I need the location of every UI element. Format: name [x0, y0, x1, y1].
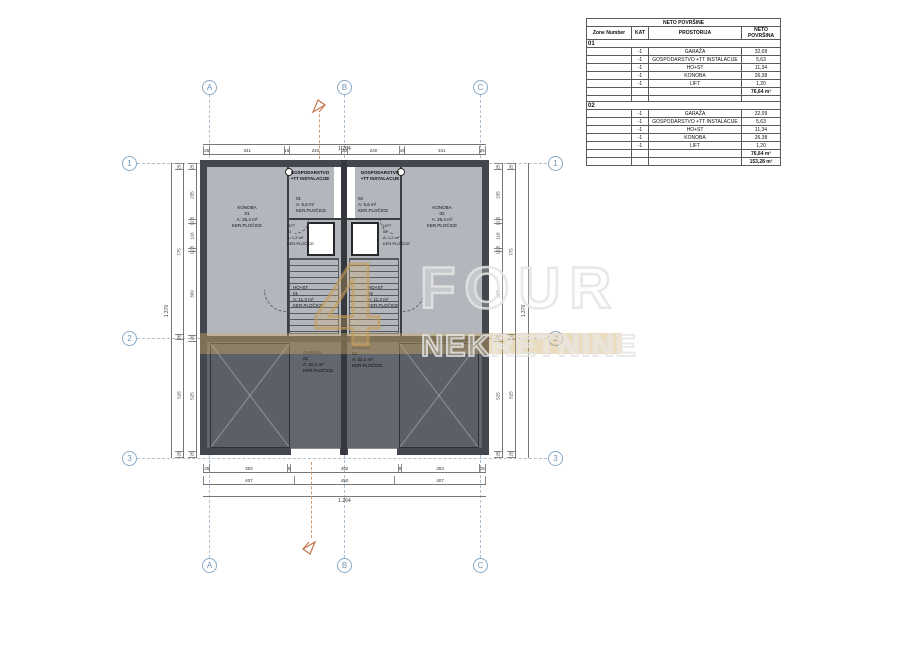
- table-row: -1 GOSPODARSTVO +TT INSTALACIJE 5,63: [587, 118, 781, 126]
- dim-value: 116: [190, 232, 195, 239]
- parking-space-right: [399, 343, 479, 448]
- dim-segment: 353: [210, 464, 288, 472]
- dim-segment: 25: [175, 452, 183, 458]
- dim-value: 25: [204, 466, 209, 471]
- dim-segment: 25: [203, 464, 210, 472]
- table-title: NETO POVRŠINE: [587, 19, 781, 27]
- cell-room: KONOBA: [649, 134, 742, 142]
- cell-area: 11,34: [742, 64, 781, 72]
- dim-left-chain: 2523512,511612,53992052525: [188, 163, 197, 458]
- dim-value: 341: [243, 148, 251, 153]
- cell-room: GARAŽA: [649, 110, 742, 118]
- lift-shaft-right: [351, 222, 379, 256]
- cell-kat: -1: [632, 56, 649, 64]
- wall-konoba-right: [400, 167, 402, 336]
- room-label-gospodarstvo-left: GOSPODARSTVO+TT INSTALACIJE: [286, 170, 334, 182]
- dim-segment: 353: [402, 464, 480, 472]
- dim-value: 20: [342, 148, 347, 153]
- dim-value: 1.370: [521, 304, 527, 317]
- neto-povrsine-table: NETO POVRŠINE Zone Number KAT PROSTORIJA…: [586, 18, 781, 166]
- area-table: NETO POVRŠINE Zone Number KAT PROSTORIJA…: [586, 18, 781, 166]
- dim-segment: 235: [494, 170, 502, 220]
- col-kat: KAT: [632, 27, 649, 40]
- dim-value: 25: [190, 164, 195, 169]
- zone-id: 01: [587, 40, 781, 48]
- cell-area: 32,09: [742, 48, 781, 56]
- zone-row: 01: [587, 40, 781, 48]
- dim-value: 25: [480, 466, 485, 471]
- cell-room: HO+ST: [649, 64, 742, 72]
- grid-bubble-B-bottom: B: [337, 558, 352, 573]
- dim-value: 1.264: [338, 498, 351, 504]
- table-header-row: Zone Number KAT PROSTORIJA NETO POVRŠINA: [587, 27, 781, 40]
- dim-value: 20: [177, 334, 182, 339]
- dim-value: 1.370: [164, 304, 170, 317]
- cell-area: 1,20: [742, 80, 781, 88]
- cell-kat: -1: [632, 126, 649, 134]
- section-line-bottom: [311, 462, 312, 538]
- cell-area: 26,38: [742, 72, 781, 80]
- room-label-gospodarstvo-right: GOSPODARSTVO+TT INSTALACIJE: [356, 170, 404, 182]
- dim-value: 8: [288, 466, 291, 471]
- dim-segment: 240: [290, 146, 343, 154]
- dim-value: 20: [496, 336, 501, 341]
- dim-left-total: 1.370: [163, 163, 172, 458]
- dim-segment: 407: [395, 476, 486, 484]
- dim-value: 25: [509, 164, 514, 169]
- dim-value: 353: [436, 466, 444, 471]
- dim-segment: 341: [210, 146, 285, 154]
- dim-value: 25: [496, 164, 501, 169]
- dim-value: 25: [509, 452, 514, 457]
- cell-area: 5,63: [742, 118, 781, 126]
- section-marker-top: [310, 98, 328, 114]
- cell-kat: -1: [632, 118, 649, 126]
- table-row: -1 HO+ST 11,34: [587, 126, 781, 134]
- dim-top-total: 1.264: [203, 136, 486, 145]
- cell-kat: -1: [632, 142, 649, 150]
- dim-segment: 25: [507, 163, 515, 170]
- dim-segment: 25: [507, 452, 515, 458]
- dim-value: 407: [436, 478, 444, 483]
- cell-room: GOSPODARSTVO +TT INSTALACIJE: [649, 118, 742, 126]
- dim-bottom-mid: 407450407: [203, 476, 486, 485]
- dim-value: 116: [496, 232, 501, 239]
- room-label-host-left: HO+ST01A: 11,3 m²KER.PLOČICE: [293, 285, 323, 309]
- dim-value: 775: [509, 248, 514, 256]
- room-title: GOSPODARSTVO+TT INSTALACIJE: [361, 170, 400, 181]
- cell-room: LIFT: [649, 142, 742, 150]
- cell-room: LIFT: [649, 80, 742, 88]
- section-total-row: 76,64 m²: [587, 150, 781, 158]
- dim-segment: 240: [348, 146, 401, 154]
- room-label-konoba-left: KONOBA01A: 26,4 m²KER.PLOČICE: [217, 205, 277, 229]
- col-neto-povrsina: NETO POVRŠINA: [742, 27, 781, 40]
- dim-segment: 525: [188, 342, 196, 452]
- section-total-row: 76,64 m²: [587, 88, 781, 96]
- dim-value: 450: [341, 478, 349, 483]
- party-wall: [341, 160, 347, 455]
- room-label-lift-left: LIFT01A: 1,2 m²KER.PLOČICE: [287, 223, 306, 247]
- grid-bubble-3-right: 3: [548, 451, 563, 466]
- cell-kat: -1: [632, 48, 649, 56]
- dim-left-outer: 257752052525: [175, 163, 184, 458]
- grid-bubble-C-bottom: C: [473, 558, 488, 573]
- dim-segment: 25: [203, 146, 210, 154]
- zone-row: 02: [587, 102, 781, 110]
- dim-right-chain: 2523512,511612,53992052525: [494, 163, 503, 458]
- section-marker-bottom: [300, 540, 318, 556]
- dim-value: 25: [480, 148, 485, 153]
- table-title-row: NETO POVRŠINE: [587, 19, 781, 27]
- room-info-gospodarstvo-right: 02A: 5,6 m²KER.PLOČICE: [358, 196, 398, 214]
- dim-value: 25: [190, 452, 195, 457]
- cell-kat: -1: [632, 134, 649, 142]
- grid-bubble-C-top: C: [473, 80, 488, 95]
- cell-area: 5,63: [742, 56, 781, 64]
- grid-bubble-2-right: 2: [548, 331, 563, 346]
- dim-segment: 525: [494, 342, 502, 452]
- grid-bubble-2-left: 2: [122, 331, 137, 346]
- grid-bubble-A-top: A: [202, 80, 217, 95]
- dim-value: 235: [496, 191, 501, 199]
- cell-area: 26,38: [742, 134, 781, 142]
- cell-room: HO+ST: [649, 126, 742, 134]
- dim-value: 399: [496, 290, 501, 298]
- room-label-konoba-right: KONOBA02A: 26,4 m²KER.PLOČICE: [412, 205, 472, 229]
- cell-area: 1,20: [742, 142, 781, 150]
- section-line-top: [319, 114, 320, 159]
- table-row: -1 GOSPODARSTVO +TT INSTALACIJE 5,63: [587, 56, 781, 64]
- table-row: -1 GARAŽA 32,09: [587, 110, 781, 118]
- dim-value: 235: [190, 191, 195, 199]
- parking-space-left: [210, 343, 290, 448]
- table-row: -1 LIFT 1,20: [587, 142, 781, 150]
- dim-segment: 25: [188, 163, 196, 170]
- cell-room: KONOBA: [649, 72, 742, 80]
- lift-shaft-left: [307, 222, 335, 256]
- dim-bottom-total: 1.264: [203, 488, 486, 497]
- dim-value: 240: [370, 148, 378, 153]
- cell-kat: -1: [632, 80, 649, 88]
- dim-segment: 25: [480, 464, 486, 472]
- room-info-gospodarstvo-left: 01A: 5,6 m²KER.PLOČICE: [296, 196, 336, 214]
- dim-value: 20: [509, 334, 514, 339]
- grid-bubble-3-left: 3: [122, 451, 137, 466]
- dim-value: 407: [245, 478, 253, 483]
- dim-segment: 25: [188, 452, 196, 458]
- table-row: -1 HO+ST 11,34: [587, 64, 781, 72]
- table-row: -1 KONOBA 26,38: [587, 72, 781, 80]
- dim-segment: 399: [494, 252, 502, 336]
- cell-area: 32,09: [742, 110, 781, 118]
- dim-segment: 25: [480, 146, 486, 154]
- room-title: GOSPODARSTVO+TT INSTALACIJE: [291, 170, 330, 181]
- dim-value: 341: [438, 148, 446, 153]
- grid-bubble-A-bottom: A: [202, 558, 217, 573]
- dim-segment: 775: [507, 170, 515, 334]
- cell-area: 11,34: [742, 126, 781, 134]
- dim-value: 25: [177, 452, 182, 457]
- zone-id: 02: [587, 102, 781, 110]
- grid-bubble-1-right: 1: [548, 156, 563, 171]
- room-label-garaza-left: GARAŽA01A: 32,1 m²KER.PLOČICE: [303, 350, 339, 374]
- col-zone-number: Zone Number: [587, 27, 632, 40]
- drawing-sheet: A B C A B C 1 2 3 1 2 3 GOSPODARSTVO+TT …: [0, 0, 919, 649]
- dim-value: 353: [245, 466, 253, 471]
- dim-value: 20: [190, 336, 195, 341]
- cell-room: GARAŽA: [649, 48, 742, 56]
- dim-value: 8: [399, 466, 402, 471]
- dim-top-chain: 2534116240202401634125: [203, 146, 486, 155]
- room-label-lift-right: LIFT02A: 1,2 m²KER.PLOČICE: [383, 223, 402, 247]
- garage-door-right: [348, 448, 397, 455]
- cell-room: GOSPODARSTVO +TT INSTALACIJE: [649, 56, 742, 64]
- grid-line-3: [137, 458, 547, 459]
- dim-value: 25: [204, 148, 209, 153]
- cell-kat: -1: [632, 72, 649, 80]
- dim-value: 25: [177, 164, 182, 169]
- dim-segment: 407: [203, 476, 295, 484]
- grid-bubble-1-left: 1: [122, 156, 137, 171]
- dim-value: 775: [177, 248, 182, 256]
- dim-value: 525: [177, 392, 182, 400]
- dim-segment: 775: [175, 170, 183, 334]
- room-label-garaza-right: GARAŽA02A: 32,1 m²KER.PLOČICE: [352, 345, 388, 369]
- garage-door-left: [291, 448, 340, 455]
- dim-value: 399: [190, 290, 195, 298]
- dim-segment: 235: [188, 170, 196, 220]
- dim-value: 525: [509, 392, 514, 400]
- dim-value: 492: [341, 466, 349, 471]
- dim-segment: 25: [494, 452, 502, 458]
- dim-segment: 341: [405, 146, 480, 154]
- cell-kat: -1: [632, 110, 649, 118]
- dim-segment: 525: [175, 340, 183, 452]
- dim-segment: 25: [494, 163, 502, 170]
- dim-value: 525: [496, 392, 501, 400]
- table-row: -1 LIFT 1,20: [587, 80, 781, 88]
- table-row: -1 KONOBA 26,38: [587, 134, 781, 142]
- cell-kat: -1: [632, 64, 649, 72]
- grand-total: 153,28 m²: [742, 158, 781, 166]
- section-total: 76,64 m²: [742, 150, 781, 158]
- dim-segment: 525: [507, 340, 515, 452]
- dim-value: 25: [496, 452, 501, 457]
- grand-total-row: 153,28 m²: [587, 158, 781, 166]
- dim-segment: 399: [188, 252, 196, 336]
- dim-right-total: 1.370: [520, 163, 529, 458]
- dim-segment: 492: [291, 464, 399, 472]
- room-label-host-right: HO+ST02A: 11,3 m²KER.PLOČICE: [368, 285, 398, 309]
- dim-segment: 25: [175, 163, 183, 170]
- col-prostorija: PROSTORIJA: [649, 27, 742, 40]
- table-row: -1 GARAŽA 32,09: [587, 48, 781, 56]
- dim-right-outer: 257752052525: [507, 163, 516, 458]
- dim-bottom-chain: 253538492835325: [203, 464, 486, 473]
- dim-segment: 450: [295, 476, 395, 484]
- grid-bubble-B-top: B: [337, 80, 352, 95]
- dim-value: 525: [190, 392, 195, 400]
- section-total: 76,64 m²: [742, 88, 781, 96]
